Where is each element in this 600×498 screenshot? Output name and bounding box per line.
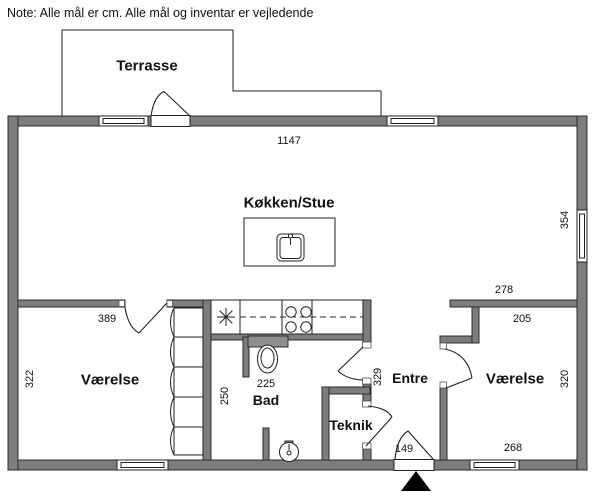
window-top-right bbox=[387, 116, 438, 126]
room-label-vaerelse-left: Værelse bbox=[81, 372, 139, 389]
dim-living-height: 354 bbox=[559, 211, 571, 229]
wall-niche-right bbox=[472, 305, 479, 343]
wall-int-bath-entre-a bbox=[363, 300, 371, 342]
dim-vaerelse-right-height: 320 bbox=[559, 370, 571, 388]
right-bedroom-door-swing bbox=[445, 349, 472, 388]
dim-entrance-width: 149 bbox=[395, 443, 413, 455]
wall-entre-bedroom bbox=[440, 388, 447, 460]
hand-sink-icon bbox=[280, 441, 299, 462]
kitchen-island bbox=[244, 218, 335, 266]
room-label-bad: Bad bbox=[253, 392, 279, 408]
terrace-door-swing bbox=[151, 92, 190, 117]
wall-top bbox=[8, 116, 587, 126]
room-label-kokken-stue: Køkken/Stue bbox=[244, 195, 335, 212]
wall-left bbox=[8, 116, 18, 470]
dim-vaerelse-right-bottom-width: 268 bbox=[504, 442, 522, 454]
terrace-outline bbox=[62, 30, 381, 116]
wall-right bbox=[577, 116, 587, 470]
kitchen-sink-icon bbox=[277, 234, 304, 261]
note-text: Note: Alle mål er cm. Alle mål og invent… bbox=[7, 6, 313, 20]
toilet-icon bbox=[248, 336, 288, 373]
window-bottom-left bbox=[117, 460, 168, 470]
window-right-wall bbox=[577, 210, 587, 262]
room-label-teknik: Teknik bbox=[329, 417, 372, 433]
left-bedroom-door-swing bbox=[125, 303, 167, 333]
dim-vaerelse-right-width: 205 bbox=[513, 313, 531, 325]
wall-bath-stub bbox=[263, 428, 269, 460]
bath-door-swing bbox=[338, 347, 363, 380]
dim-entre-height: 329 bbox=[372, 368, 384, 386]
wardrobe bbox=[171, 308, 204, 455]
window-top-left bbox=[99, 116, 148, 126]
room-label-vaerelse-right: Værelse bbox=[486, 371, 544, 388]
room-label-entre: Entre bbox=[392, 370, 428, 386]
wall-int-bath-entre-c bbox=[363, 449, 371, 460]
wall-int-left-bedroom-top bbox=[18, 300, 125, 307]
dishwasher-star-icon bbox=[217, 308, 235, 326]
wardrobe-doors-wave bbox=[171, 308, 175, 455]
floor-plan-drawing bbox=[0, 0, 600, 498]
dim-vaerelse-left-height: 322 bbox=[24, 370, 36, 388]
floor-plan-page: Note: Alle mål er cm. Alle mål og invent… bbox=[0, 0, 600, 498]
terrace-door-opening bbox=[151, 116, 190, 127]
dim-bad-height: 250 bbox=[219, 387, 231, 405]
wall-int-bedroom-bath bbox=[203, 300, 211, 460]
dim-vaerelse-left-width: 389 bbox=[98, 313, 116, 325]
wall-int-right-bedroom-top bbox=[450, 300, 577, 307]
wall-teknik-left bbox=[322, 387, 329, 460]
dim-bad-width: 225 bbox=[257, 378, 275, 390]
north-arrow-icon bbox=[401, 471, 431, 491]
window-bottom-right bbox=[470, 460, 519, 470]
dim-entre-top-width: 278 bbox=[495, 284, 513, 296]
entrance-door-opening bbox=[394, 460, 434, 471]
room-label-terrasse: Terrasse bbox=[116, 58, 177, 75]
kitchen-counter bbox=[211, 300, 363, 334]
dim-total-width: 1147 bbox=[277, 135, 301, 147]
